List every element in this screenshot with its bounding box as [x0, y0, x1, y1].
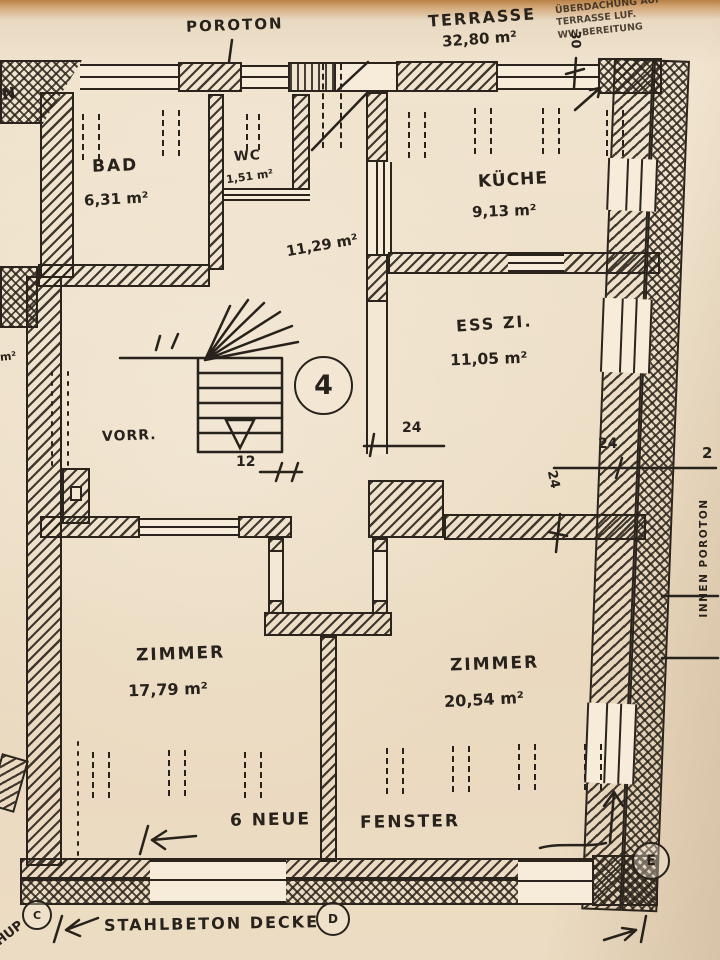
wall-vorraum-bottom-1 — [40, 516, 140, 538]
tile-mark — [408, 112, 426, 158]
corridor-wall-left — [268, 552, 284, 600]
corridor-wall-right — [372, 552, 388, 600]
entrance-opening — [336, 62, 396, 92]
tile-mark — [244, 752, 262, 798]
axis-d-label: D — [328, 912, 338, 926]
poroton-leader-line — [229, 40, 232, 62]
wall-esszimmer-bottom — [444, 514, 646, 540]
tile-mark — [584, 744, 602, 790]
tile-mark — [518, 744, 536, 790]
arrow-axis-e-icon — [604, 916, 646, 942]
room-bad-name: BAD — [92, 155, 139, 177]
window-kueche — [606, 158, 658, 212]
window-top-2 — [242, 65, 288, 89]
dim-24-flur-label: 24 — [402, 420, 421, 436]
kueche-door-swing — [575, 88, 600, 110]
axis-marker-e: E — [632, 842, 670, 880]
fenster-note-right: FENSTER — [360, 811, 460, 833]
room-zimmer-rechts-name: ZIMMER — [450, 652, 540, 675]
window-top-1 — [80, 64, 178, 90]
tile-mark — [452, 746, 470, 792]
door-wc — [224, 188, 310, 201]
unit-number-circle: 4 — [294, 356, 353, 415]
room-wc-area: 1,51 m² — [225, 167, 274, 186]
door-flur-kueche — [366, 162, 392, 254]
room-esszimmer-area: 11,05 m² — [450, 349, 528, 370]
dim-24-aussen-label: 24 — [598, 436, 617, 452]
tile-mark — [82, 114, 100, 160]
wall-top-seg-1 — [178, 62, 242, 92]
tile-mark — [168, 750, 186, 796]
room-wc-name: WC — [233, 147, 261, 165]
window-esszimmer — [600, 298, 653, 374]
wall-flur-right-1 — [366, 92, 388, 162]
stairs-direction-arrow — [226, 420, 254, 448]
wall-top-seg-3 — [396, 61, 498, 92]
wall-left-main — [26, 276, 62, 866]
arrow-decke-icon — [54, 916, 98, 942]
chimney-flue — [70, 486, 82, 501]
room-kueche-name: KÜCHE — [478, 168, 549, 192]
room-zimmer-links-name: ZIMMER — [136, 642, 226, 665]
wall-left-upper — [40, 92, 74, 278]
arrow-left-icon — [140, 826, 196, 854]
wall-left-cut-piece — [0, 266, 38, 328]
floor-plan-photo: N POROTON TERRASSE 32,80 m² ÜBERDACHUNG … — [0, 0, 720, 960]
axis-marker-d: D — [316, 902, 350, 936]
wall-note-innen-poroton: INNEN POROTON — [698, 473, 710, 643]
terrasse-area: 32,80 m² — [441, 27, 517, 50]
corridor-jamb-tr — [372, 538, 388, 552]
corner-scribble: HUP — [0, 918, 26, 949]
tile-mark — [92, 752, 110, 798]
room-flur-area: 11,29 m² — [285, 232, 359, 260]
dim-30-label: 30 — [567, 30, 583, 49]
room-zimmer-links-area: 17,79 m² — [128, 679, 208, 701]
axis-e-label: E — [646, 853, 656, 869]
wall-zimmer-divider — [320, 636, 337, 862]
tile-mark — [386, 748, 404, 794]
window-top-3 — [498, 64, 598, 90]
wall-left-edge-blob — [0, 753, 29, 813]
dim-12-label: 12 — [236, 454, 255, 470]
window-bottom-2 — [518, 860, 592, 905]
wall-flur-right-2 — [366, 254, 388, 302]
door-kueche-esszimmer — [508, 254, 564, 272]
corridor-bottom — [264, 612, 392, 636]
wall-vorraum-bottom-2 — [238, 516, 292, 538]
decke-note: STAHLBETON DECKE — [104, 912, 319, 935]
wall-wc-right — [292, 94, 310, 198]
tile-mark — [322, 64, 342, 148]
room-esszimmer-name: ESS ZI. — [455, 311, 533, 335]
poroton-label: POROTON — [186, 14, 284, 35]
tile-mark — [474, 108, 492, 154]
fenster-note-left: 6 NEUE — [230, 809, 311, 830]
room-bad-area: 6,31 m² — [84, 188, 149, 209]
wall-bottom-inner — [20, 858, 594, 879]
room-zimmer-rechts-area: 20,54 m² — [444, 688, 525, 711]
tile-mark — [606, 110, 624, 156]
axis-c-label: C — [33, 909, 41, 922]
wall-bad-bottom — [38, 264, 210, 287]
dim-24-wand-label: 24 — [544, 469, 562, 490]
tile-mark — [246, 114, 260, 150]
room-kueche-area: 9,13 m² — [472, 201, 537, 221]
door-zimmer-links — [140, 518, 238, 536]
wall-pier-esszimmer — [368, 480, 444, 538]
dim-12-line — [260, 463, 302, 481]
window-bottom-1 — [150, 860, 286, 903]
wall-bad-right — [208, 94, 224, 270]
dim-2-cut-label: 2 — [702, 444, 712, 462]
room-vorraum-name: VORR. — [102, 427, 157, 445]
terrasse-title: TERRASSE — [427, 4, 536, 30]
left-cut-area: m² — [0, 349, 17, 364]
tile-mark — [542, 108, 560, 154]
wall-bottom-outer — [20, 879, 594, 905]
corridor-jamb-tl — [268, 538, 284, 552]
axis-marker-c: C — [22, 900, 52, 930]
tile-mark — [162, 110, 180, 156]
wall-flur-right-3 — [366, 302, 388, 454]
unit-number: 4 — [314, 370, 333, 401]
